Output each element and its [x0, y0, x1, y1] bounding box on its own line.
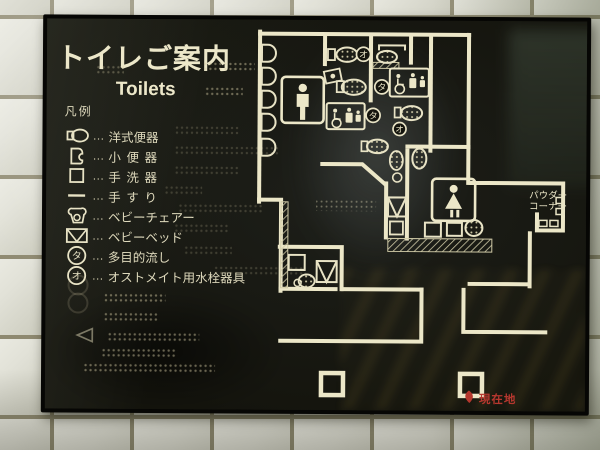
- legend-separator: …: [92, 189, 104, 203]
- multipurpose-symbol: タ: [366, 108, 380, 122]
- braille-dots: [103, 293, 165, 303]
- female-pictogram: [445, 185, 462, 218]
- legend-label: 多目的流し: [108, 246, 171, 265]
- sign-title-english: Toilets: [57, 78, 235, 101]
- legend-row: … ベビーベッド: [64, 225, 246, 246]
- legend-label: オストメイト用水栓器具: [108, 266, 246, 286]
- legend-row: … 洋式便器: [64, 125, 246, 146]
- legend-separator: …: [92, 229, 104, 243]
- braille-dots: [103, 312, 159, 322]
- tactile-triangle: [75, 327, 95, 344]
- legend-separator: …: [92, 169, 104, 183]
- toilet-icon: [465, 220, 482, 236]
- svg-text:タ: タ: [377, 82, 386, 92]
- womens-toilet-sign: [432, 179, 475, 221]
- accessible-baby-sign: [390, 68, 429, 96]
- braille-dots: [83, 363, 215, 374]
- ostomate-symbol: オ: [393, 122, 406, 135]
- western-toilet-icon: [64, 126, 90, 144]
- baby-bed-icon: [317, 261, 337, 282]
- ostomate-symbol: オ: [356, 47, 370, 61]
- legend-separator: …: [92, 249, 104, 263]
- handrail-icon: [379, 45, 405, 50]
- legend-label: 手洗器: [108, 166, 163, 185]
- title-block: トイレご案内 Toilets: [57, 36, 247, 101]
- male-pictogram: [297, 84, 309, 120]
- mens-toilet-sign: [282, 77, 324, 123]
- baby-chair-icon: [64, 205, 90, 225]
- you-are-here-label: 現在地: [479, 392, 517, 406]
- legend-row: タ … 多目的流し: [64, 245, 246, 266]
- toilet-icon: [294, 274, 315, 287]
- baby-bed-icon: [388, 197, 406, 216]
- legend-row: オ … オストメイト用水栓器具: [64, 265, 246, 286]
- accessible-baby-sign: [327, 103, 365, 129]
- pillar-marker: [321, 373, 343, 395]
- toilet-icon: [395, 106, 423, 120]
- wash-basin-icon: [390, 221, 403, 234]
- braille-dots-map: [316, 200, 376, 211]
- baby-bed-icon: [64, 226, 90, 244]
- toilet-icon: [361, 139, 388, 153]
- toilet-icon: [377, 51, 397, 63]
- sign-title: トイレご案内: [57, 36, 247, 77]
- sign-panel: トイレご案内 Toilets 凡例 … 洋式便器: [45, 18, 587, 411]
- legend-row: … ベビーチェアー: [64, 205, 246, 226]
- legend-label: 手すり: [108, 186, 163, 205]
- wash-basin-icon: [64, 166, 90, 184]
- embossed-circle: [67, 292, 88, 313]
- urinal-icons: [261, 45, 276, 156]
- multipurpose-symbol: タ: [375, 80, 389, 94]
- legend-separator: …: [92, 269, 104, 283]
- station-tiled-wall: トイレご案内 Toilets 凡例 … 洋式便器: [0, 0, 600, 450]
- urinal-icon: [64, 146, 90, 165]
- legend-separator: …: [92, 129, 104, 143]
- toilet-icon: [412, 149, 426, 169]
- legend: 凡例 … 洋式便器 … 小便器: [64, 102, 247, 286]
- braille-dots: [101, 348, 177, 358]
- hatched-walls: [281, 62, 493, 289]
- handrail-icon: [64, 190, 90, 200]
- toilet-icon: [337, 80, 366, 95]
- wash-basin-icon: [425, 223, 462, 237]
- legend-row: … 手すり: [64, 185, 246, 206]
- svg-text:パウダー: パウダー: [529, 189, 567, 201]
- legend-row: … 小便器: [64, 145, 246, 166]
- toilet-icon: [390, 151, 403, 182]
- floor-plan-map: オ タ: [247, 20, 587, 412]
- toilet-icon: [328, 47, 358, 62]
- legend-label: ベビーベッド: [108, 226, 183, 245]
- legend-header: 凡例: [65, 102, 247, 120]
- svg-text:タ: タ: [72, 250, 82, 262]
- svg-text:オ: オ: [395, 124, 404, 134]
- braille-dots: [107, 332, 199, 343]
- multipurpose-sink-symbol: タ: [64, 244, 90, 266]
- wash-basin-icon: [289, 255, 305, 270]
- legend-label: 洋式便器: [108, 126, 158, 145]
- legend-separator: …: [92, 209, 104, 223]
- legend-row: … 手洗器: [64, 165, 246, 186]
- you-are-here-marker: 現在地: [465, 390, 516, 406]
- svg-text:オ: オ: [359, 50, 368, 60]
- svg-text:タ: タ: [369, 111, 378, 121]
- toilet-guide-sign: トイレご案内 Toilets 凡例 … 洋式便器: [41, 14, 591, 415]
- legend-label: ベビーチェアー: [108, 206, 195, 226]
- legend-label: 小便器: [108, 146, 163, 165]
- legend-separator: …: [92, 149, 104, 163]
